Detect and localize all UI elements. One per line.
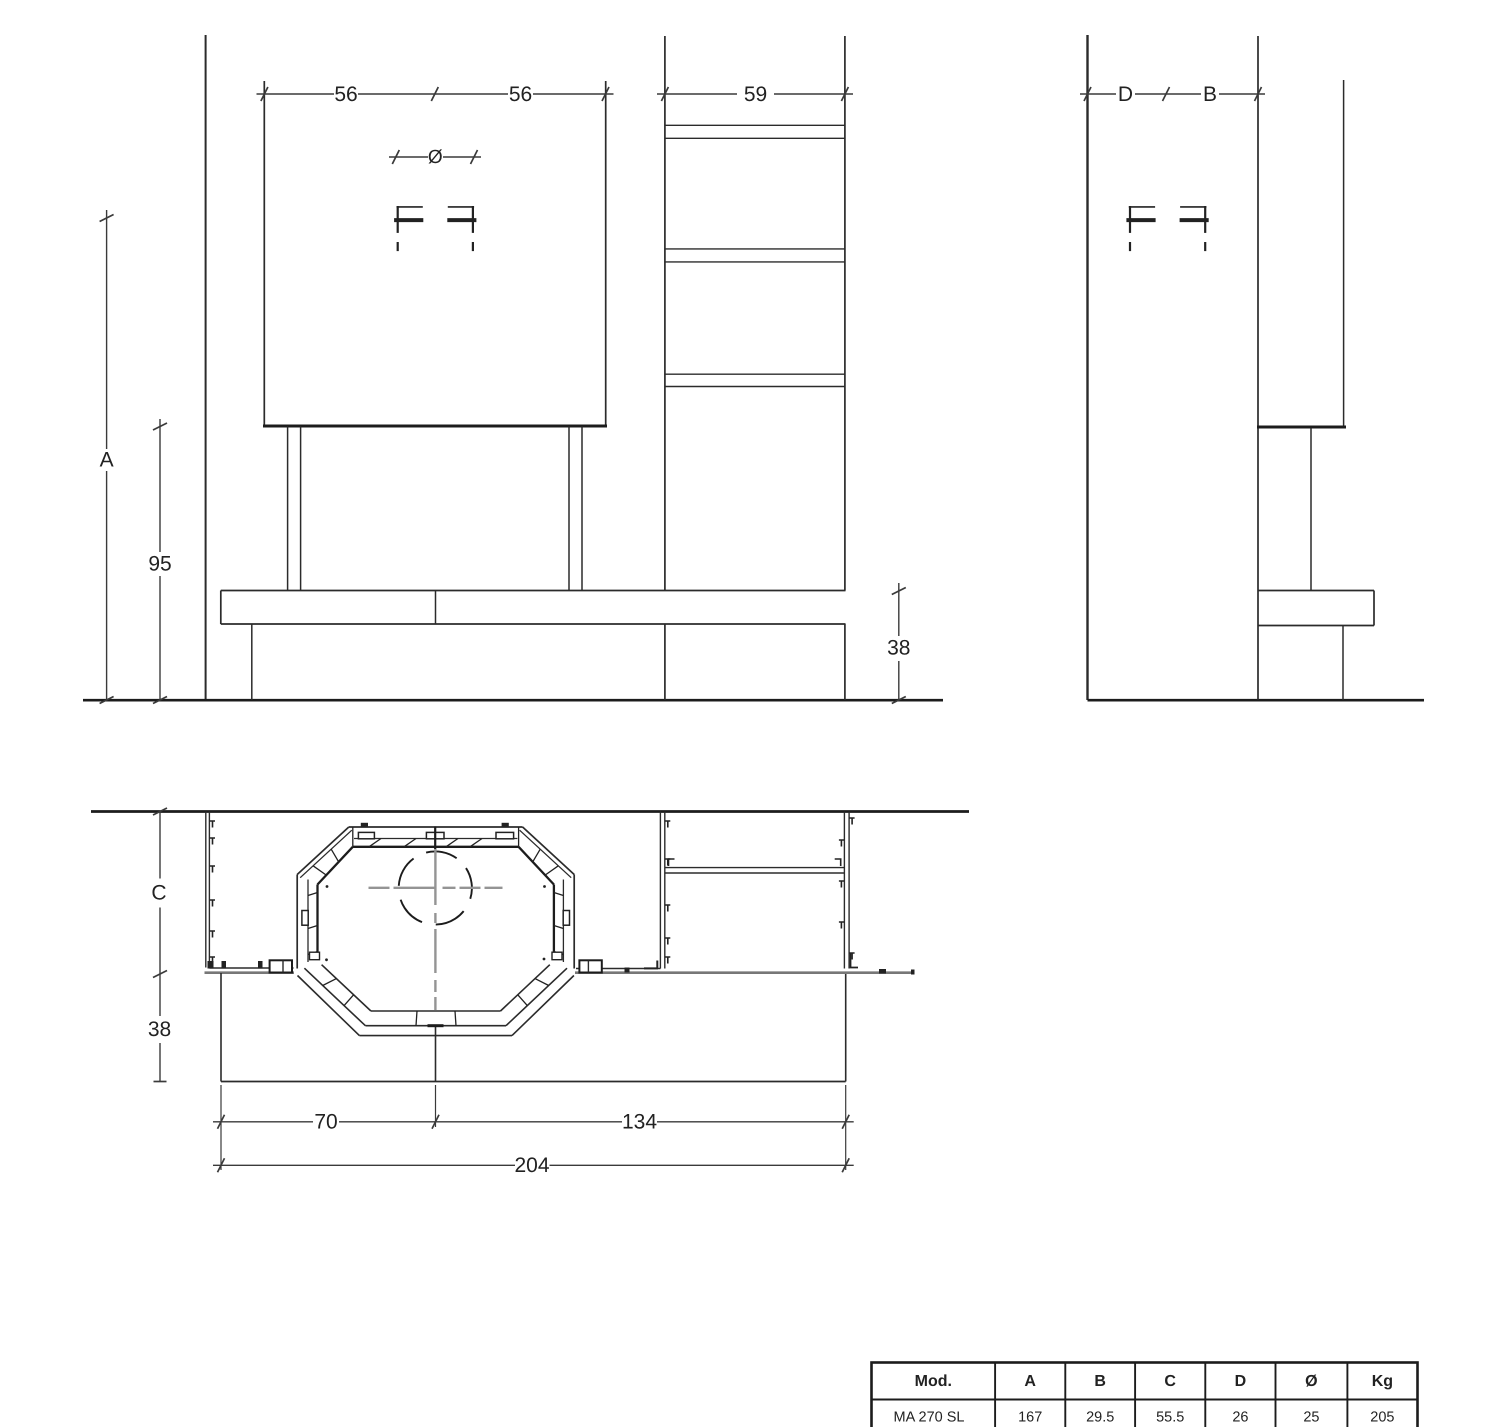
- svg-text:Kg: Kg: [1372, 1373, 1393, 1390]
- svg-text:205: 205: [1370, 1410, 1394, 1426]
- svg-text:B: B: [1203, 83, 1217, 106]
- svg-text:Mod.: Mod.: [915, 1373, 952, 1390]
- svg-text:D: D: [1118, 83, 1133, 106]
- svg-text:134: 134: [622, 1110, 657, 1133]
- svg-text:204: 204: [514, 1154, 549, 1177]
- svg-text:38: 38: [887, 637, 910, 660]
- svg-text:Ø: Ø: [1305, 1373, 1317, 1390]
- svg-text:55.5: 55.5: [1156, 1410, 1184, 1426]
- svg-text:56: 56: [509, 83, 532, 106]
- svg-text:56: 56: [334, 83, 357, 106]
- svg-text:C: C: [1164, 1373, 1176, 1390]
- svg-text:70: 70: [314, 1110, 337, 1133]
- svg-text:MA 270 SL: MA 270 SL: [894, 1410, 965, 1426]
- svg-text:A: A: [100, 449, 114, 472]
- svg-text:25: 25: [1303, 1410, 1319, 1426]
- svg-text:167: 167: [1018, 1410, 1042, 1426]
- svg-text:A: A: [1024, 1373, 1036, 1390]
- svg-text:B: B: [1094, 1373, 1106, 1390]
- svg-text:D: D: [1235, 1373, 1247, 1390]
- svg-text:29.5: 29.5: [1086, 1410, 1114, 1426]
- svg-text:26: 26: [1232, 1410, 1248, 1426]
- svg-text:38: 38: [148, 1018, 171, 1041]
- svg-text:95: 95: [148, 553, 171, 576]
- svg-text:C: C: [151, 882, 166, 905]
- svg-text:59: 59: [744, 83, 767, 106]
- svg-text:Ø: Ø: [428, 147, 443, 168]
